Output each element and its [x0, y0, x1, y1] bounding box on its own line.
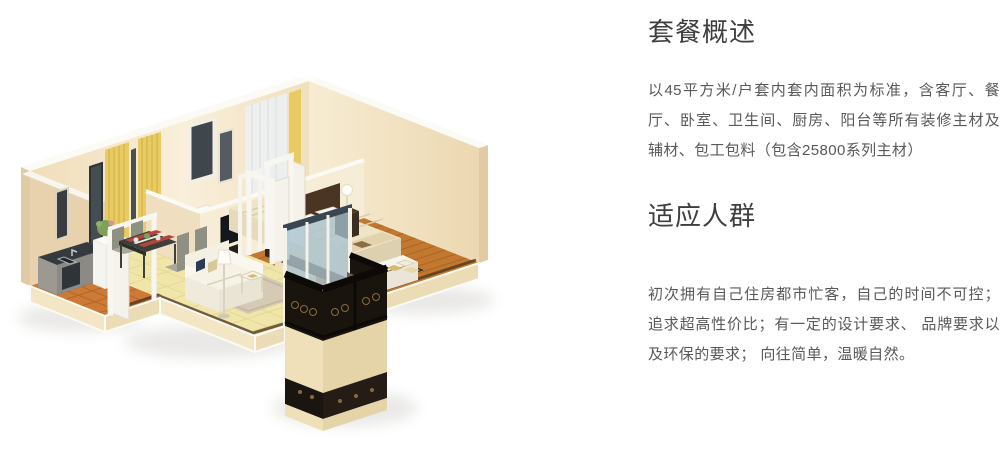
- overview-body: 以45平方米/户套内套内面积为标准，含客厅、餐厅、卧室、卫生间、厨房、阳台等所有…: [648, 76, 1000, 166]
- bathroom-mirror: [219, 129, 233, 183]
- table-lamp: [342, 185, 353, 196]
- package-info: 套餐概述 以45平方米/户套内套内面积为标准，含客厅、餐厅、卧室、卫生间、厨房、…: [648, 0, 1000, 462]
- overview-heading: 套餐概述: [648, 12, 756, 49]
- kitchen-mirror: [56, 188, 68, 240]
- audience-heading: 适应人群: [648, 196, 756, 233]
- package-page: 套餐概述 以45平方米/户套内套内面积为标准，含客厅、餐厅、卧室、卫生间、厨房、…: [0, 0, 1003, 462]
- floor-plan-figure: [0, 0, 645, 462]
- floor-plan-image: [0, 0, 645, 462]
- bathroom-window: [190, 119, 214, 182]
- audience-body: 初次拥有自己住房都市忙客，自己的时间不可控；追求超高性价比；有一定的设计要求、 …: [648, 280, 1000, 370]
